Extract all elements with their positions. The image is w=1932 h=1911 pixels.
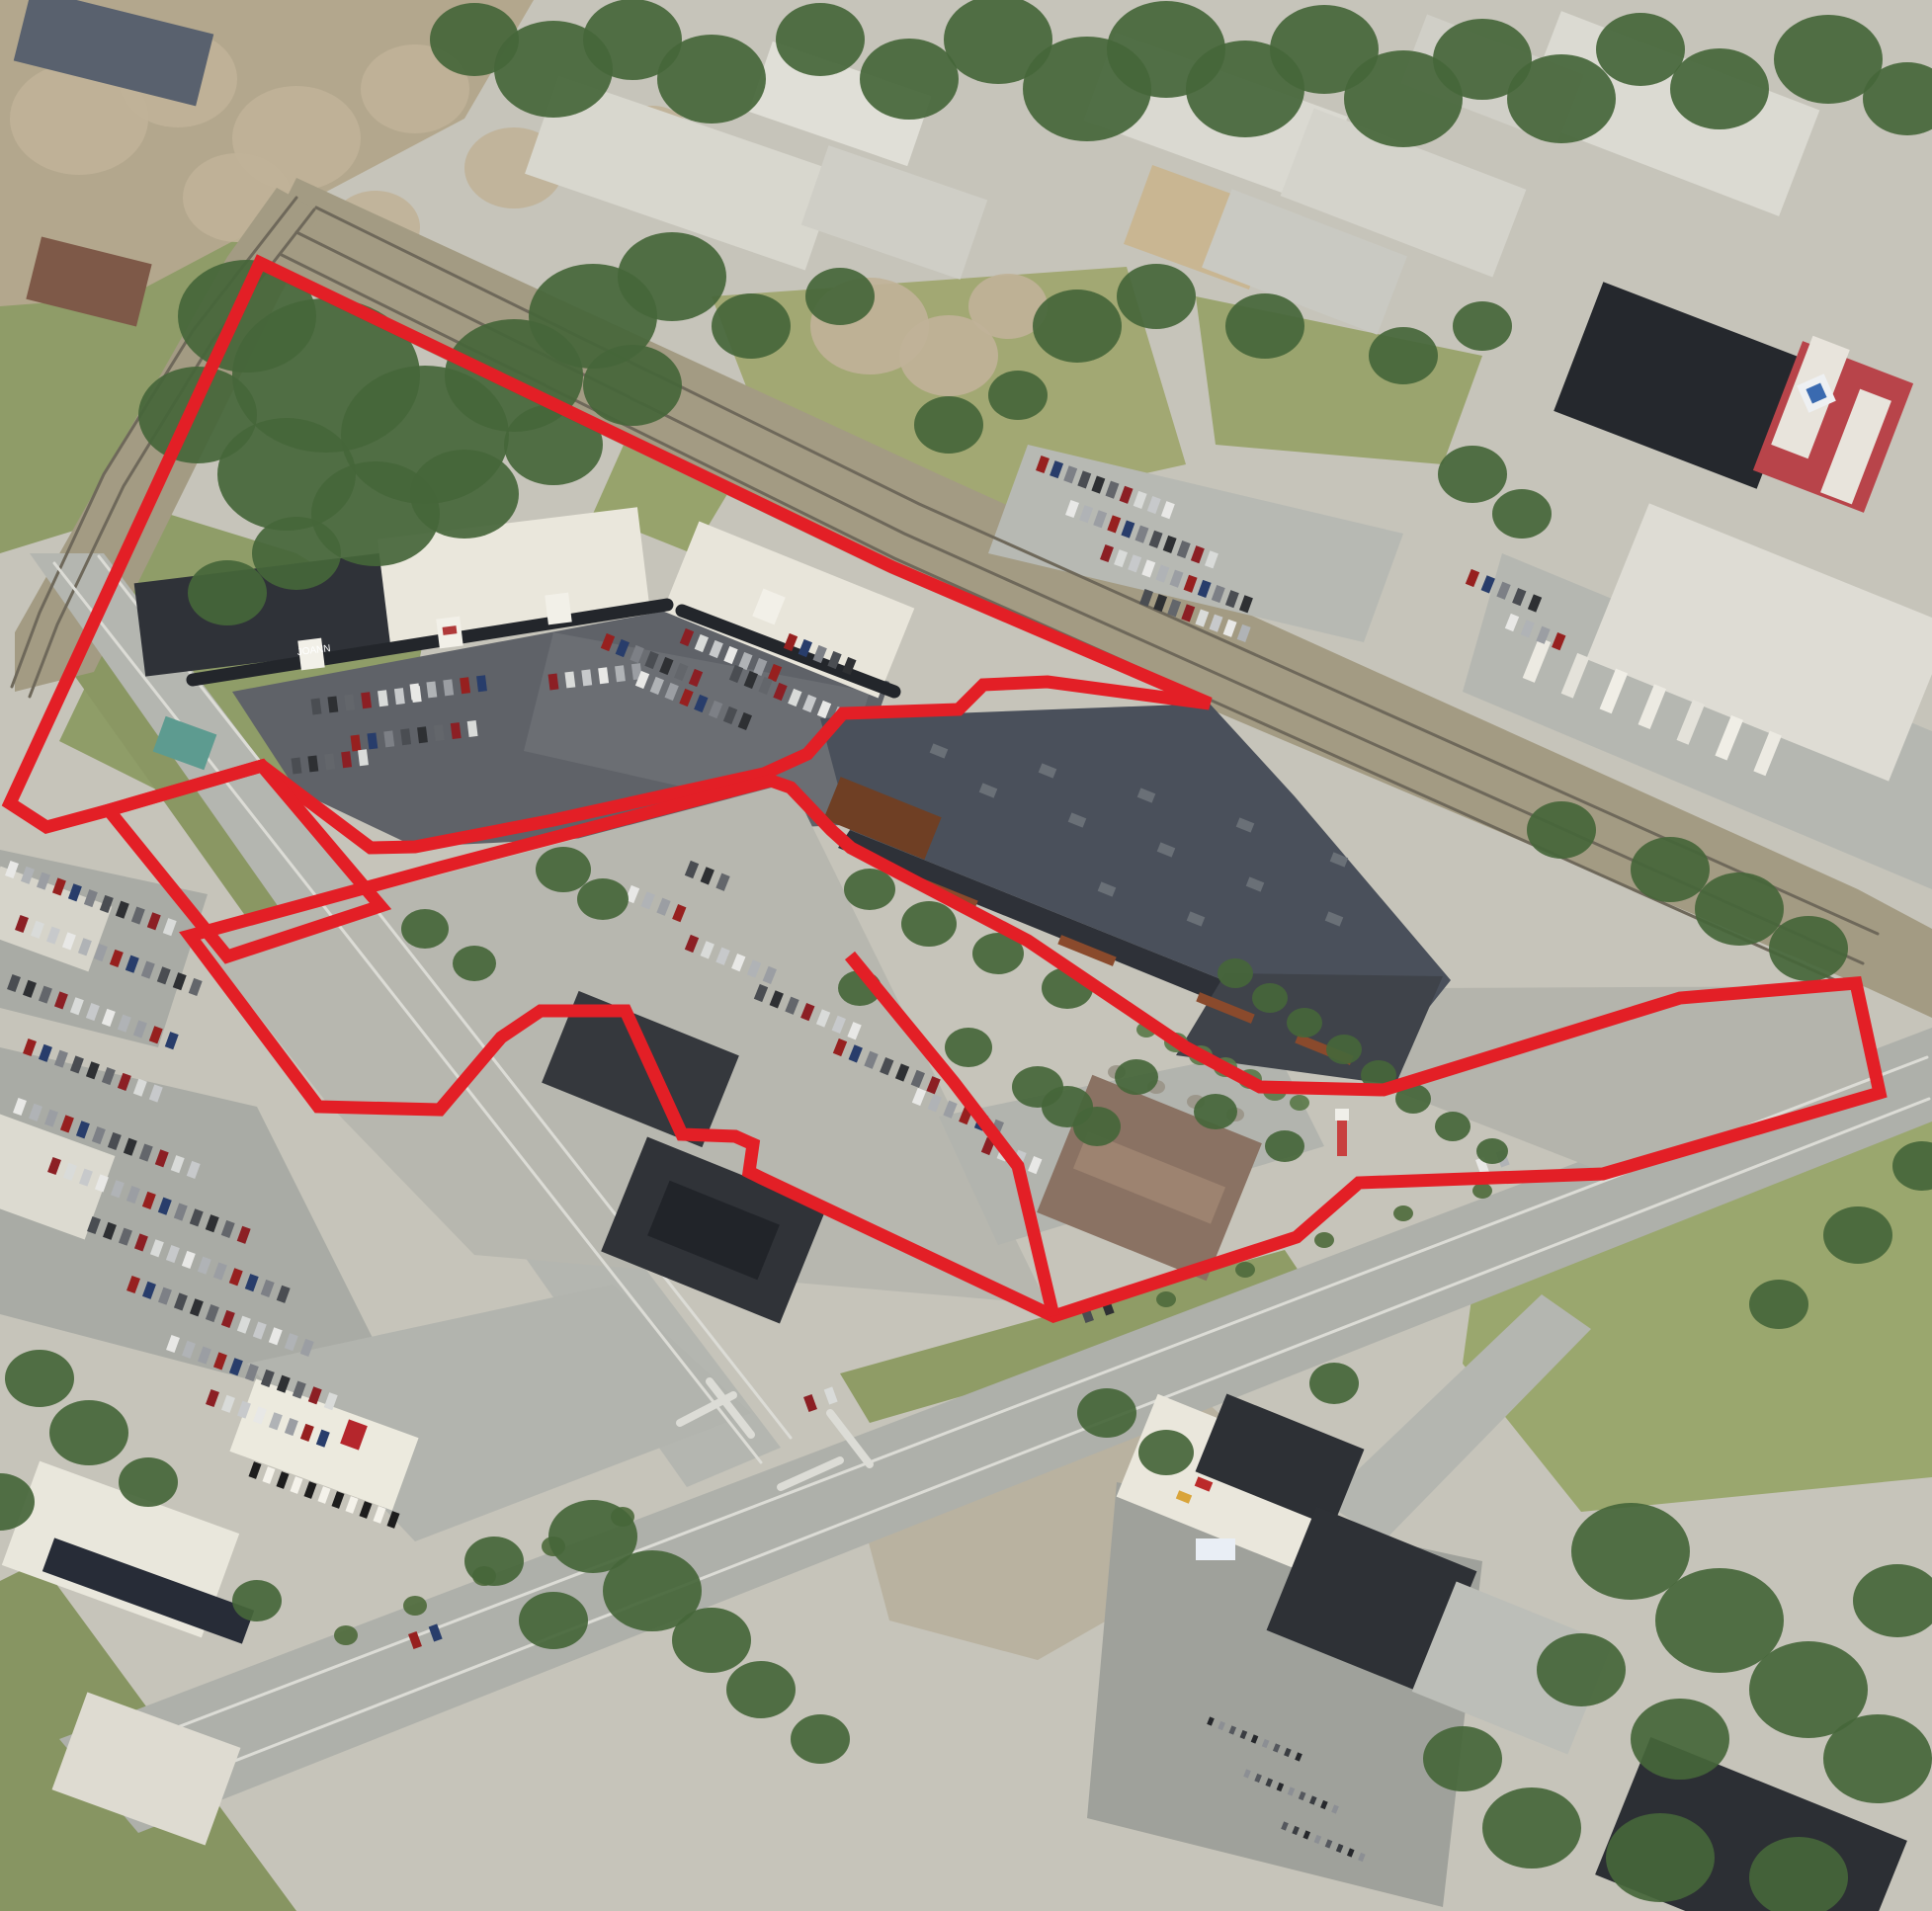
tree [464,1537,524,1586]
tree [805,268,875,325]
tree [844,869,895,910]
tree [776,3,865,76]
tree [1492,489,1552,539]
tree [1438,446,1507,503]
tree [1033,290,1122,363]
tree [712,293,791,359]
pylon-sign [1335,1109,1349,1121]
sign-pole [1335,1109,1349,1156]
tree [1596,13,1685,86]
tree [519,1592,588,1649]
tree [1482,1787,1581,1869]
tree [901,901,957,947]
tree [1252,983,1288,1013]
median-bush [1314,1232,1334,1248]
tree [1823,1206,1892,1264]
tree [1527,801,1596,859]
tree [1077,1388,1136,1438]
tree [1287,1008,1322,1038]
median-bush [403,1596,427,1616]
tree [1695,872,1784,946]
tree [791,1714,850,1764]
tree [914,396,983,454]
tree [657,35,766,124]
tree [1138,1430,1194,1475]
tree [49,1400,128,1465]
tree [1823,1714,1932,1803]
median-bush [1156,1291,1176,1307]
tree [1423,1726,1502,1791]
tree [5,1350,74,1407]
tree [1225,293,1304,359]
tree [1435,1112,1470,1141]
tree [1769,916,1848,981]
tree [401,909,449,949]
tree [1749,1280,1808,1329]
tree [453,946,496,981]
tree [1453,301,1512,351]
storefront-arch [545,593,571,625]
tree [430,3,519,76]
aerial-scene: JOANN [0,0,1932,1911]
tree [1326,1035,1362,1064]
tree [410,450,519,539]
tree [536,847,591,892]
tree [1194,1094,1237,1129]
tree [988,371,1048,420]
garden-stock [1290,1095,1309,1111]
tree [1218,958,1253,988]
storefront-arch [443,625,458,635]
aerial-photo-stage: JOANN Oblique aerial photograph of a ret… [0,0,1932,1911]
tree [945,1028,992,1067]
median-bush [1235,1262,1255,1278]
tree [1655,1568,1784,1673]
tree [1309,1363,1359,1404]
tree [1369,327,1438,384]
median-bush [334,1625,358,1645]
tree [188,560,267,625]
tree [1606,1813,1715,1902]
tree [1631,837,1710,902]
tree [1670,48,1769,129]
median-bush [1472,1183,1492,1199]
tree [618,232,726,321]
tree [672,1608,751,1673]
tree [1042,1086,1093,1127]
building [1196,1538,1235,1560]
tree [577,878,629,920]
tree [1115,1059,1158,1095]
tree [1507,54,1616,143]
tree [232,1580,282,1621]
tree [1476,1138,1508,1164]
median-bush [1393,1205,1413,1221]
tree [1537,1633,1626,1706]
tree [1265,1130,1304,1162]
tree [583,345,682,426]
tree [1117,264,1196,329]
tree [726,1661,796,1718]
tree [1631,1699,1729,1780]
tree [860,39,959,120]
tree [252,517,341,590]
tree [119,1457,178,1507]
